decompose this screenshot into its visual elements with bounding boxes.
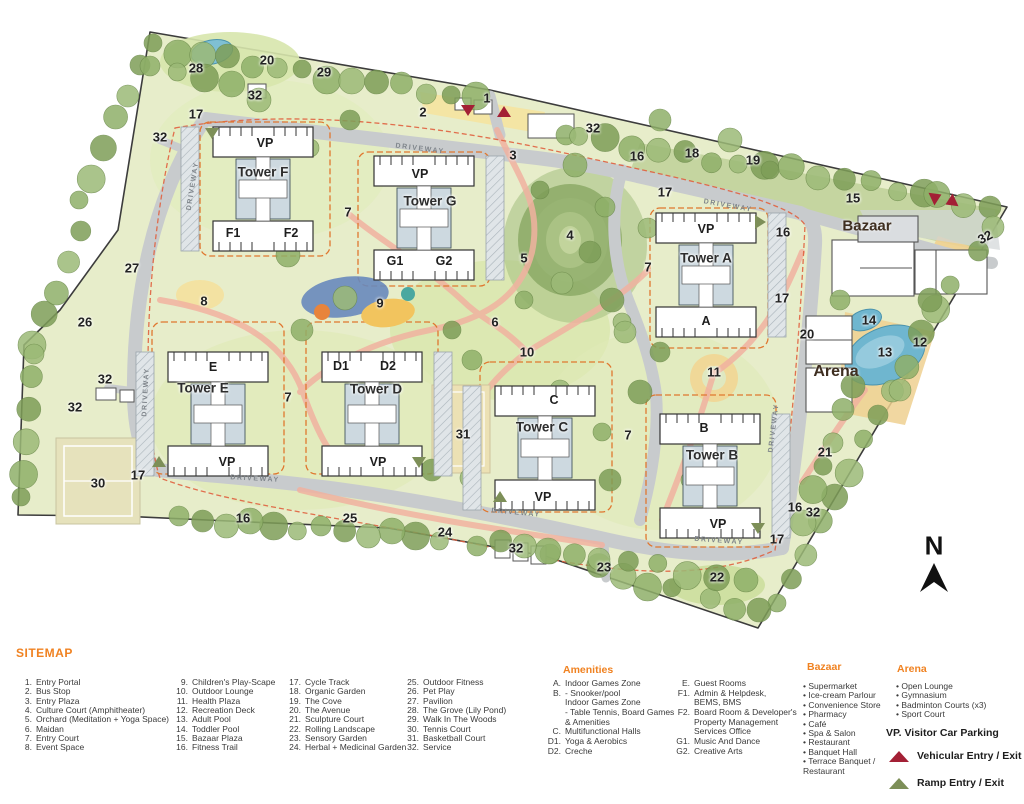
- sitemap-column: 1.Entry Portal2.Bus Stop3.Entry Plaza4.C…: [16, 678, 169, 753]
- bazaar-list: SupermarketIce-cream ParlourConvenience …: [803, 682, 898, 767]
- sitemap-column: 9.Children's Play-Scape10.Outdoor Lounge…: [170, 678, 275, 753]
- arena-title: Arena: [897, 663, 927, 675]
- legend-item: 24.Herbal + Medicinal Garden: [281, 743, 406, 752]
- arena-list: Open LoungeGymnasiumBadminton Courts (x3…: [896, 682, 1016, 720]
- facilities-list: E.Guest RoomsF1.Admin & Helpdesk,BEMS, B…: [668, 679, 797, 757]
- ramp-entry-icon: [889, 778, 909, 789]
- legend-title: SITEMAP: [16, 646, 73, 660]
- vehicular-entry-icon: [889, 751, 909, 762]
- legend-item: D1.Yoga & Aerobics: [543, 737, 674, 747]
- sitemap-column: 25.Outdoor Fitness26.Pet Play27.Pavilion…: [399, 678, 506, 753]
- ramp-entry-legend: Ramp Entry / Exit: [889, 777, 1004, 789]
- sitemap-column: 17.Cycle Track18.Organic Garden19.The Co…: [281, 678, 406, 753]
- legend-item: Terrace Banquet / Restaurant: [803, 757, 898, 766]
- legend-item: 32.Service: [399, 743, 506, 752]
- legend-item: 8.Event Space: [16, 743, 169, 752]
- legend-item: G2.Creative Arts: [668, 747, 797, 757]
- bazaar-title: Bazaar: [807, 661, 841, 673]
- legend-item: D2.Creche: [543, 747, 674, 757]
- vehicular-entry-legend: Vehicular Entry / Exit: [889, 750, 1021, 762]
- site-plan-page: 1234567777891011121314151616161617171717…: [0, 0, 1024, 804]
- legend-item: Sport Court: [896, 710, 1016, 719]
- north-arrow-icon: [920, 563, 948, 592]
- vp-note: VP. Visitor Car Parking: [886, 727, 999, 739]
- amenities-title: Amenities: [563, 664, 613, 676]
- amenities-list: A.Indoor Games ZoneB.- Snooker/poolIndoo…: [543, 679, 674, 757]
- legend-item: 16.Fitness Trail: [170, 743, 275, 752]
- tennis-court: [56, 438, 140, 524]
- arena-building: [806, 316, 852, 412]
